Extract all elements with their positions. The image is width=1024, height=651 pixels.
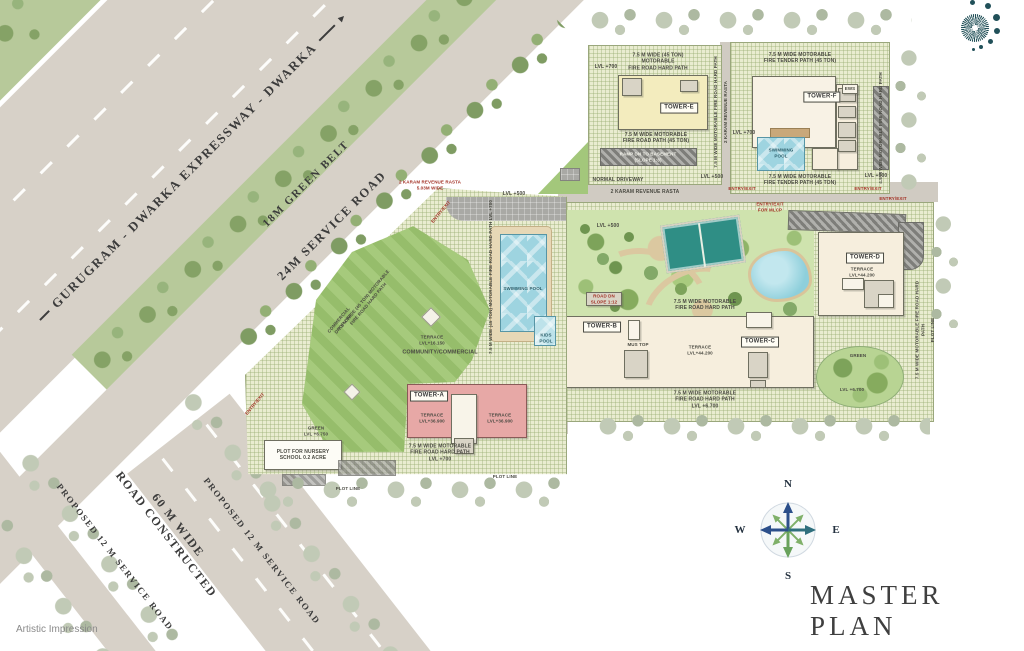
tower-e-label: TOWER-E [660, 103, 698, 114]
block-a-lvl500-label: LVL +500 [503, 191, 525, 197]
community-terrace-label: TERRACE LVL+16.150 [419, 334, 445, 345]
tower-d-terrace-label: TERRACE LVL+44.200 [849, 266, 875, 277]
block-e-ramp-label: RAMP DN TO BASEMENT (SLOPE 1:8) [620, 151, 677, 162]
plot-line-label-2: PLOT LINE [336, 486, 360, 492]
kids-pool-label: KIDS POOL [539, 332, 552, 343]
block-f-right-tree-column [890, 42, 932, 202]
tower-b-label: TOWER-B [583, 322, 621, 333]
tower-f-roof-box-4 [838, 140, 856, 152]
garden-pond [748, 248, 812, 302]
compass-west-label: W [735, 524, 746, 536]
tower-f-roof-box-3 [838, 122, 856, 138]
block-f-lvl500-label: LVL +500 [865, 173, 887, 179]
green-oval-label: GREEN [850, 353, 867, 359]
tower-d-roof-box-1 [842, 278, 864, 290]
logo-dot-6 [979, 45, 983, 49]
logo-dot-3 [993, 14, 1000, 21]
block-a-fire-bottom-label: 7.5 M WIDE MOTORABLE FIRE ROAD HARD PATH… [409, 444, 471, 463]
block3-lvl500-label: LVL +500 [597, 223, 619, 229]
block3-ramp-label: ROAD DN SLOPE 1:12 [591, 293, 618, 304]
block-f-fire-path-top-label: 7.5 M WIDE MOTORABLE FIRE TENDER PATH (4… [764, 52, 836, 65]
tower-d-label: TOWER-D [846, 253, 884, 264]
compass-rose-icon [746, 488, 830, 572]
block-e-lvl700-label: LVL +700 [595, 64, 617, 70]
tower-f-label: TOWER-F [803, 92, 840, 103]
logo-dot-4 [994, 28, 1000, 34]
block-f-fire-path-bottom-label: 7.5 M WIDE MOTORABLE FIRE TENDER PATH (4… [764, 174, 836, 187]
top-tree-row [582, 4, 912, 40]
community-label: COMMUNITY/COMMERCIAL [402, 350, 477, 357]
block-e-fire-path-top-label: 7.5 M WIDE (45 TON) MOTORABLE FIRE ROAD … [628, 53, 688, 72]
entry-exit-label-1: ENTRY/EXIT [728, 186, 755, 192]
block3-right-tree-column [928, 208, 962, 328]
brand-logo [948, 0, 1024, 58]
plot-line-label-1: PLOT LINE [493, 474, 517, 480]
tower-bc-terrace-label: TERRACE LVL+44.200 [687, 344, 713, 355]
logo-dot-2 [985, 3, 991, 9]
tower-b-roof-box-2 [624, 350, 648, 378]
block-f-side-path-label: 4.5 M WIDE MOTORABLE FIRE ROAD HARD PATH [878, 72, 884, 184]
tower-a-terrace-label-1: TERRACE LVL+36.900 [419, 412, 445, 423]
tower-e-roof-box-1 [622, 78, 642, 96]
logo-disc-icon [961, 14, 989, 42]
compass-north-label: N [784, 478, 792, 490]
expressway-lead-line [39, 310, 49, 320]
block-a-bottom-tree-row [250, 470, 570, 514]
drop-off-road [446, 197, 566, 221]
master-plan-canvas: GURUGRAM - DWARKA EXPRESSWAY - DWARKA 18… [0, 0, 1024, 651]
mustop-label: MUS TOP [627, 342, 648, 348]
rasta-vertical-ef-label: 2 KARAM REVENUE RASTA [723, 81, 729, 143]
green-oval-lvl-label: LVL +6.700 [840, 387, 864, 393]
block3-fire-mid-label: 7.5 M WIDE MOTORABLE FIRE ROAD HARD PATH [674, 299, 736, 312]
block-e-lvl500-label: LVL +500 [701, 174, 723, 180]
garden-tree-clump-1 [580, 224, 590, 234]
entry-mlcp-label: ENTRY/EXIT FOR MLCP [756, 201, 783, 212]
tower-a-terrace-label-2: TERRACE LVL+36.900 [487, 412, 513, 423]
green-lvl-label: GREEN LVL +6.750 [304, 425, 328, 436]
artistic-impression-note: Artistic Impression [16, 624, 98, 635]
rasta-horizontal-label: 2 KARAM REVENUE RASTA [611, 189, 680, 195]
tower-a-label: TOWER-A [410, 391, 448, 402]
tower-e-roof-box-2 [680, 80, 698, 92]
logo-dot-5 [988, 39, 993, 44]
entry-exit-label-3: ENTRY/EXIT [879, 196, 906, 202]
block-e-fire-path-bottom-label: 7.5 M WIDE MOTORABLE FIRE ROAD PATH (45 … [623, 132, 689, 145]
rasta-corner-label: 2 KARAM REVENUE RASTA 5.03m WIDE [399, 179, 461, 190]
page-title: MASTER PLAN [810, 580, 1024, 642]
tower-c-top-box [746, 312, 772, 328]
tower-c-roof-box-1 [748, 352, 768, 378]
tower-a-core [451, 394, 477, 444]
utility-structure [560, 168, 580, 181]
tower-f-roof-box-2 [838, 106, 856, 118]
block3-fire-right-label: 7.5 M WIDE MOTORABLE FIRE ROAD HARD PATH [914, 278, 925, 382]
compass-south-label: S [785, 570, 791, 582]
tower-d-roof-box-3 [878, 294, 894, 308]
ews-label: EWS [845, 86, 856, 92]
entry-exit-label-2: ENTRY/EXIT [854, 186, 881, 192]
main-pool-label: SWIMMING POOL [503, 286, 542, 292]
mlcp-structure [788, 210, 907, 234]
tower-c-label: TOWER-C [741, 337, 779, 348]
block-e-side-path-label: 7.5 M WIDE MOTORABLE FIRE ROAD HARD PATH [713, 56, 719, 168]
tower-f-lower-wing [812, 148, 838, 170]
nursery-label: PLOT FOR NURSERY SCHOOL 0.2 ACRE [277, 449, 330, 462]
compass-east-label: E [832, 524, 839, 536]
block3-bottom-tree-row [590, 410, 930, 446]
block3-fire-bottom-label: 7.5 M WIDE MOTORABLE FIRE ROAD HARD PATH… [674, 391, 736, 410]
tower-b-roof-box-1 [628, 320, 640, 340]
compass-rose: N S E W [746, 488, 830, 572]
block-f-lvl700-label: LVL +700 [733, 130, 755, 136]
tower-f-pool-label: SWIMMING POOL [769, 147, 794, 158]
block3-plot-line-label: PLOT LINE [930, 318, 936, 342]
block-a-fire-pool-label: 7.5 M WIDE (45 TON) MOTORABLE FIRE ROAD … [488, 200, 494, 354]
logo-dot-1 [970, 0, 975, 5]
tower-c-roof-box-2 [750, 380, 766, 388]
logo-dot-7 [972, 48, 975, 51]
block-e-driveway-label: NORMAL DRIVEWAY [593, 177, 644, 183]
